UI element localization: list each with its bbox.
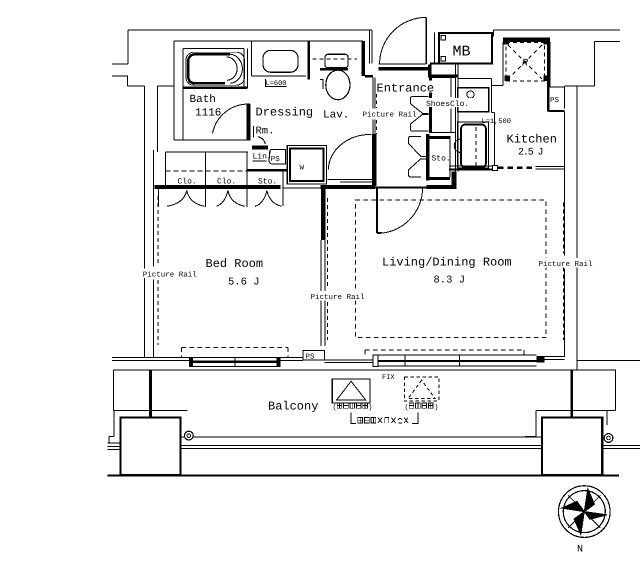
svg-text:Kitchen: Kitchen bbox=[507, 133, 557, 147]
svg-text:PS: PS bbox=[306, 352, 316, 361]
svg-text:8.3 J: 8.3 J bbox=[434, 275, 466, 287]
svg-text:(: ( bbox=[405, 403, 409, 412]
svg-text:L=1,500: L=1,500 bbox=[482, 118, 511, 126]
svg-text:): ) bbox=[434, 403, 438, 412]
svg-text:Lav.: Lav. bbox=[323, 110, 349, 122]
svg-text:Picture Rail: Picture Rail bbox=[311, 293, 366, 302]
svg-text:Balcony: Balcony bbox=[268, 400, 318, 414]
svg-text:Living/Dining Room: Living/Dining Room bbox=[382, 256, 512, 270]
svg-text:MB: MB bbox=[453, 44, 471, 61]
svg-text:Clo.: Clo. bbox=[178, 178, 197, 187]
svg-text:Picture Rail: Picture Rail bbox=[539, 260, 594, 269]
svg-text:L=600: L=600 bbox=[266, 80, 287, 88]
svg-text:): ) bbox=[368, 403, 372, 412]
svg-text:1116: 1116 bbox=[195, 108, 221, 120]
svg-text:(: ( bbox=[333, 403, 337, 412]
svg-text:ShoesClo.: ShoesClo. bbox=[426, 100, 469, 109]
svg-text:Picture Rail: Picture Rail bbox=[363, 111, 418, 120]
svg-text:Dressing: Dressing bbox=[256, 106, 314, 120]
svg-text:FIX: FIX bbox=[382, 374, 395, 382]
svg-text:Bed Room: Bed Room bbox=[206, 257, 264, 271]
svg-text:Sto.: Sto. bbox=[258, 178, 277, 187]
svg-text:Clo.: Clo. bbox=[217, 178, 236, 187]
svg-text:Rm.: Rm. bbox=[256, 126, 275, 138]
svg-text:5.6 J: 5.6 J bbox=[228, 277, 260, 289]
svg-text:PS: PS bbox=[271, 155, 281, 164]
svg-text:Entrance: Entrance bbox=[377, 82, 435, 96]
svg-text:Picture Rail: Picture Rail bbox=[143, 270, 198, 279]
svg-text:W: W bbox=[300, 165, 305, 173]
svg-text:Sto.: Sto. bbox=[432, 155, 451, 164]
svg-text:Bath: Bath bbox=[190, 94, 216, 106]
svg-text:N: N bbox=[577, 545, 583, 556]
svg-text:Lin.: Lin. bbox=[253, 153, 272, 162]
svg-text:2.5 J: 2.5 J bbox=[518, 148, 544, 159]
svg-text:PS: PS bbox=[550, 96, 560, 105]
svg-text:R: R bbox=[522, 59, 528, 70]
